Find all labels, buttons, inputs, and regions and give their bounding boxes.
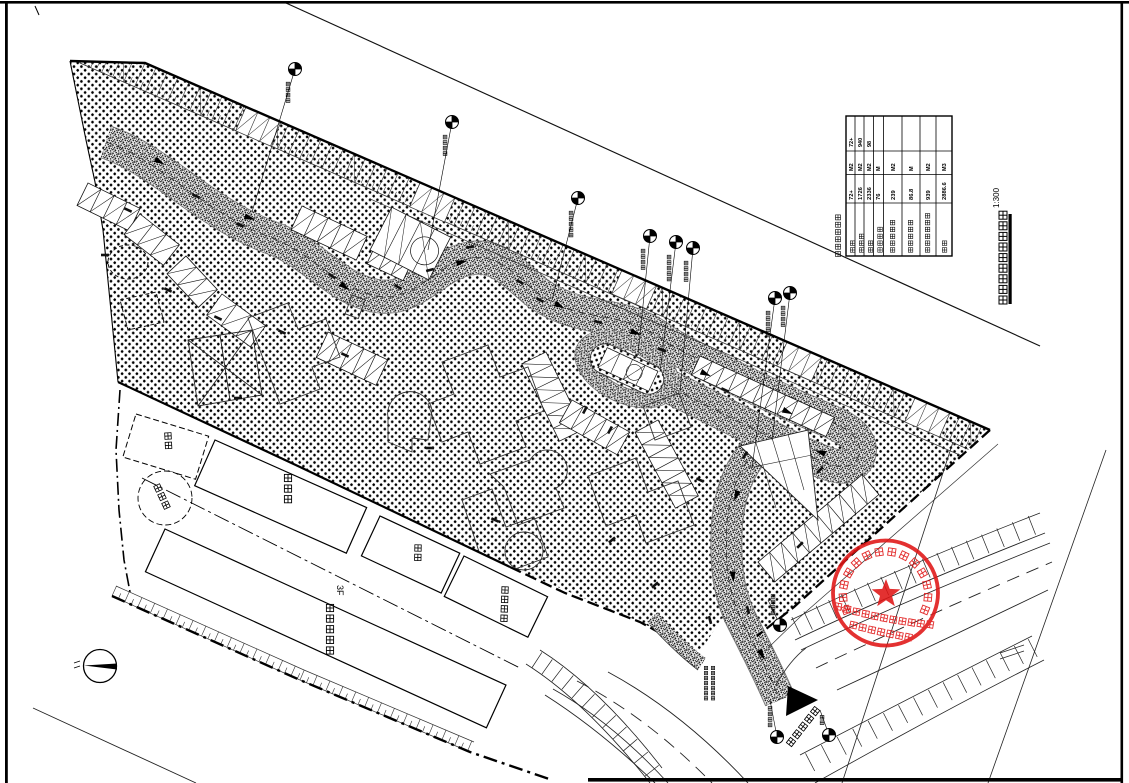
svg-text:M2: M2 — [926, 163, 932, 171]
svg-text:3F: 3F — [335, 585, 345, 596]
svg-text:72+: 72+ — [849, 190, 855, 200]
svg-text:2886.6: 2886.6 — [942, 181, 948, 200]
svg-text:M: M — [909, 166, 915, 171]
svg-text:M3: M3 — [942, 163, 948, 171]
svg-text:M2: M2 — [858, 163, 864, 171]
svg-text:M2: M2 — [891, 163, 897, 171]
svg-text:M: M — [876, 166, 882, 171]
svg-text:98: 98 — [867, 141, 873, 147]
svg-text:940: 940 — [858, 138, 864, 147]
svg-text:86.8: 86.8 — [909, 188, 915, 200]
svg-text:239: 239 — [891, 190, 897, 200]
svg-text:72+: 72+ — [849, 138, 855, 147]
svg-text:939: 939 — [926, 190, 932, 200]
svg-text:1726: 1726 — [858, 186, 864, 200]
svg-text:1:300: 1:300 — [992, 187, 1001, 208]
svg-text:M2: M2 — [867, 163, 873, 171]
svg-text:76: 76 — [876, 193, 882, 200]
svg-text:2336: 2336 — [867, 186, 873, 200]
svg-text:M2: M2 — [849, 163, 855, 171]
